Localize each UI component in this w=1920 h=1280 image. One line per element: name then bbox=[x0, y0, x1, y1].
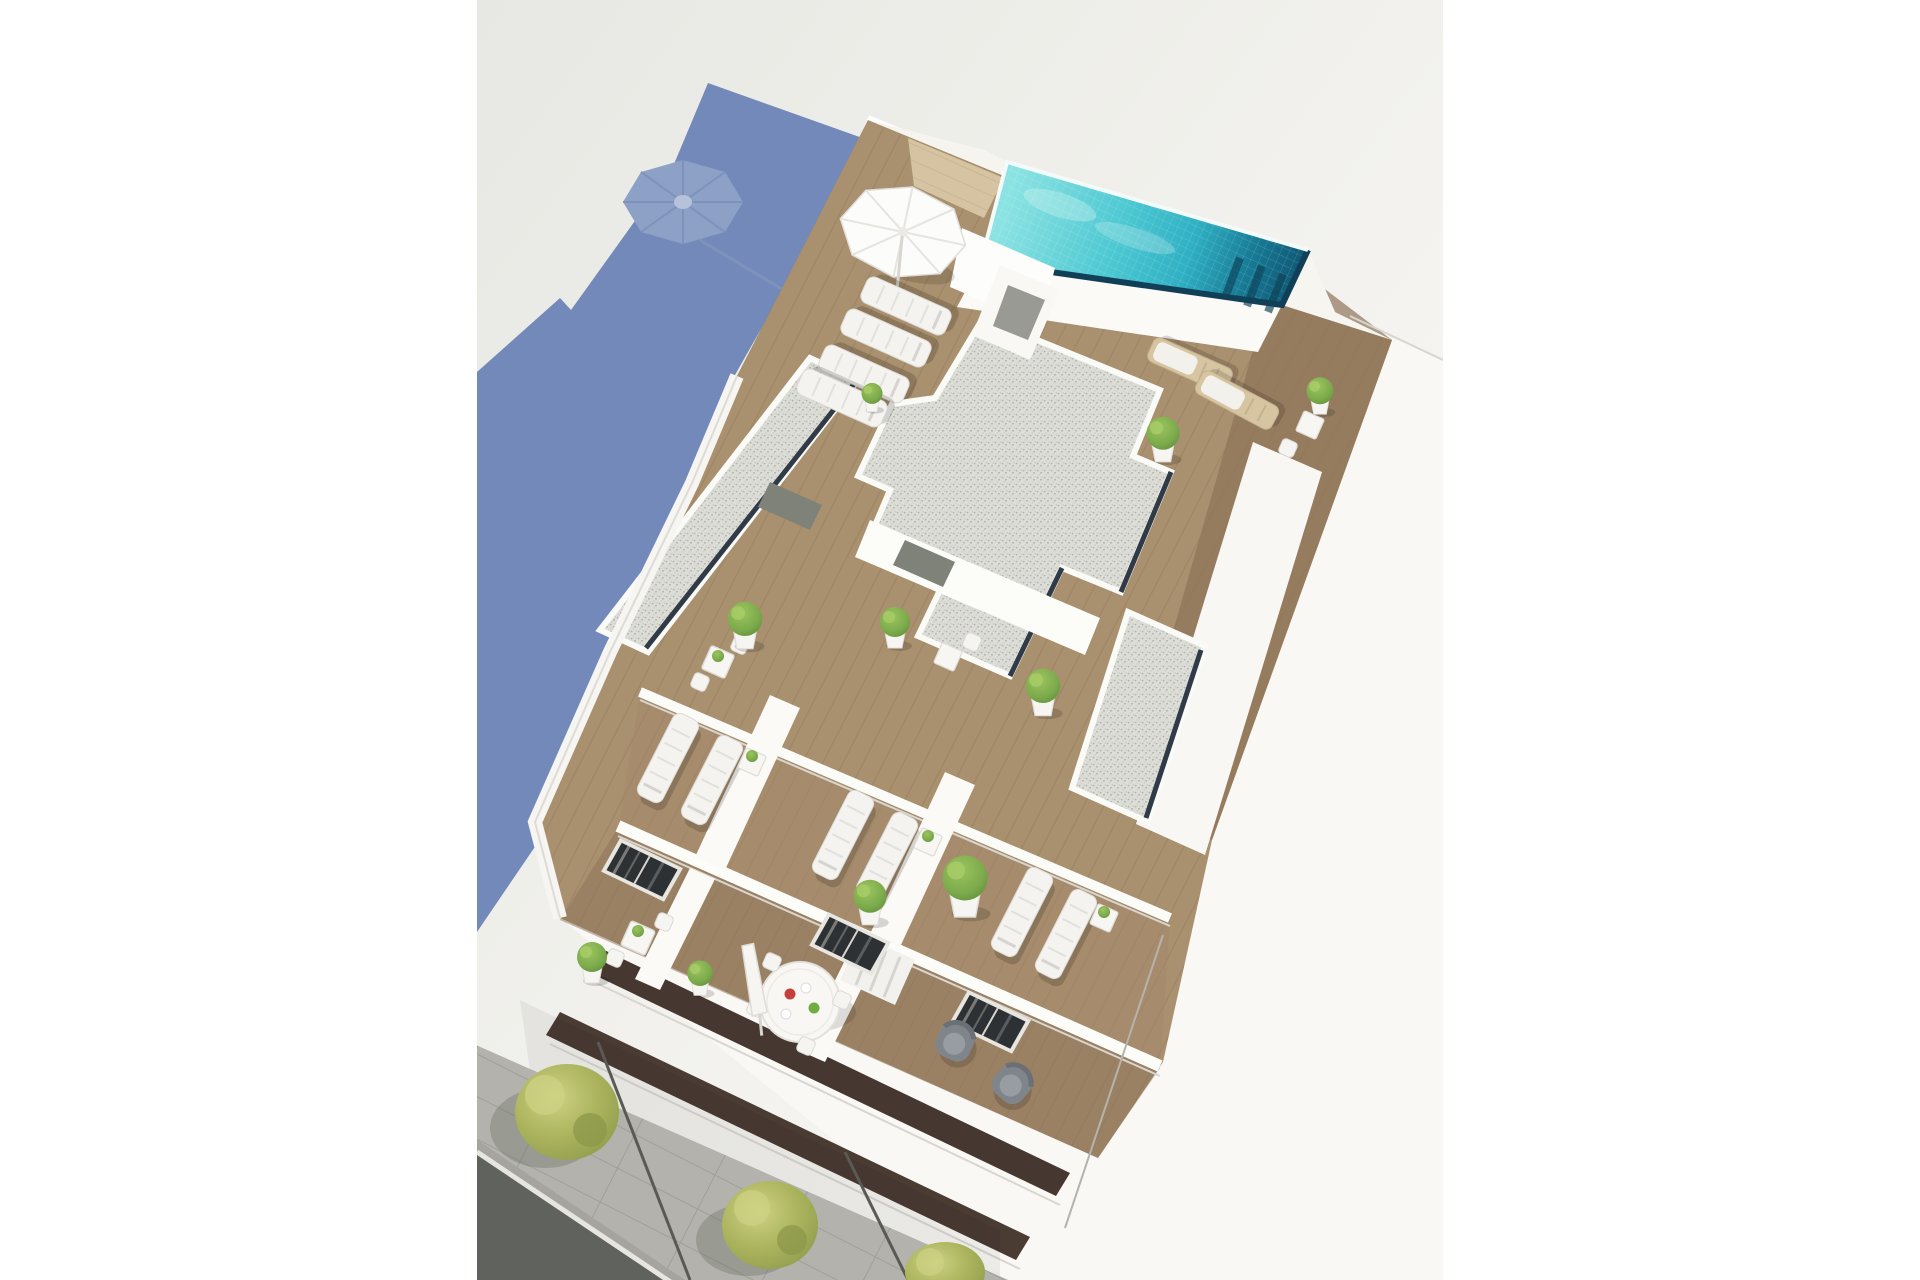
render-area bbox=[460, 0, 1443, 1280]
table-plant bbox=[922, 830, 934, 842]
red-plate bbox=[785, 989, 796, 1000]
table-plant bbox=[1098, 906, 1110, 918]
table-plant bbox=[746, 750, 758, 762]
architectural-render bbox=[0, 0, 1920, 1280]
render-canvas bbox=[0, 0, 1920, 1280]
green-plate bbox=[809, 1003, 820, 1014]
